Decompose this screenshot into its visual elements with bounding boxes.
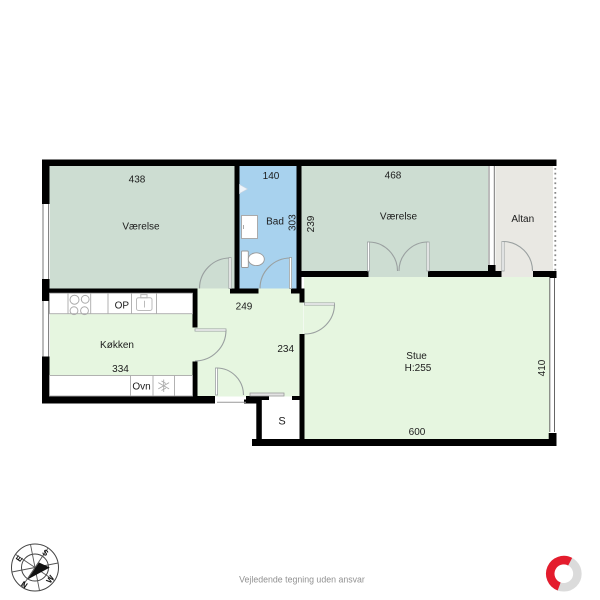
svg-text:Ovn: Ovn <box>132 382 150 393</box>
svg-text:303: 303 <box>288 214 299 231</box>
svg-text:438: 438 <box>129 175 146 186</box>
svg-text:Stue: Stue <box>406 351 427 362</box>
svg-text:Vejledende tegning uden ansvar: Vejledende tegning uden ansvar <box>239 574 365 584</box>
svg-text:239: 239 <box>306 215 317 232</box>
svg-text:Bad: Bad <box>266 217 284 228</box>
svg-text:Værelse: Værelse <box>380 212 418 223</box>
svg-text:Køkken: Køkken <box>100 340 134 351</box>
svg-text:334: 334 <box>112 364 129 375</box>
svg-text:H:255: H:255 <box>405 363 432 374</box>
svg-text:249: 249 <box>236 301 253 312</box>
svg-text:600: 600 <box>409 427 426 438</box>
svg-text:Værelse: Værelse <box>122 222 160 233</box>
svg-text:Altan: Altan <box>511 214 534 225</box>
svg-text:468: 468 <box>385 171 402 182</box>
svg-text:OP: OP <box>115 301 130 312</box>
svg-text:S: S <box>278 416 285 428</box>
svg-text:410: 410 <box>537 359 548 376</box>
svg-text:140: 140 <box>263 171 280 182</box>
svg-text:234: 234 <box>277 344 294 355</box>
